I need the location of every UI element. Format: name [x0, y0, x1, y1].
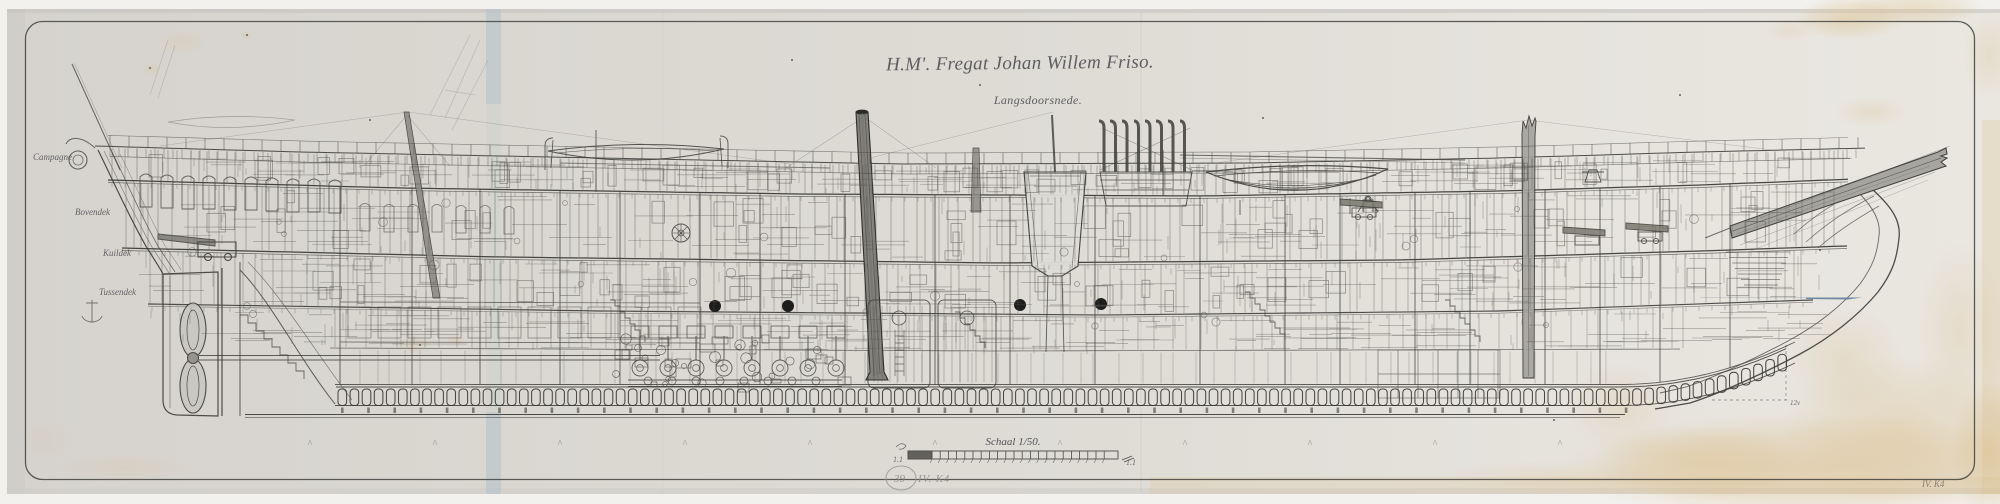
svg-text:Campagne: Campagne: [33, 152, 72, 162]
svg-text:1.1: 1.1: [1126, 458, 1136, 467]
svg-text:IV. K4: IV. K4: [1921, 479, 1945, 489]
svg-text:39: 39: [893, 473, 906, 485]
svg-text:12v: 12v: [1790, 399, 1801, 407]
svg-text:Langsdoorsnede.: Langsdoorsnede.: [993, 93, 1082, 107]
svg-text:Schaal 1/50.: Schaal 1/50.: [986, 436, 1041, 448]
svg-text:Tussendek: Tussendek: [99, 287, 137, 297]
svg-text:H.Mʹ. Fregat Johan Willem Fris: H.Mʹ. Fregat Johan Willem Friso.: [885, 52, 1154, 76]
svg-text:1.1: 1.1: [893, 455, 903, 464]
svg-text:Kuildek: Kuildek: [102, 248, 132, 258]
svg-text:Bovendek: Bovendek: [75, 207, 111, 217]
svg-text:IV. K4: IV. K4: [917, 473, 950, 485]
